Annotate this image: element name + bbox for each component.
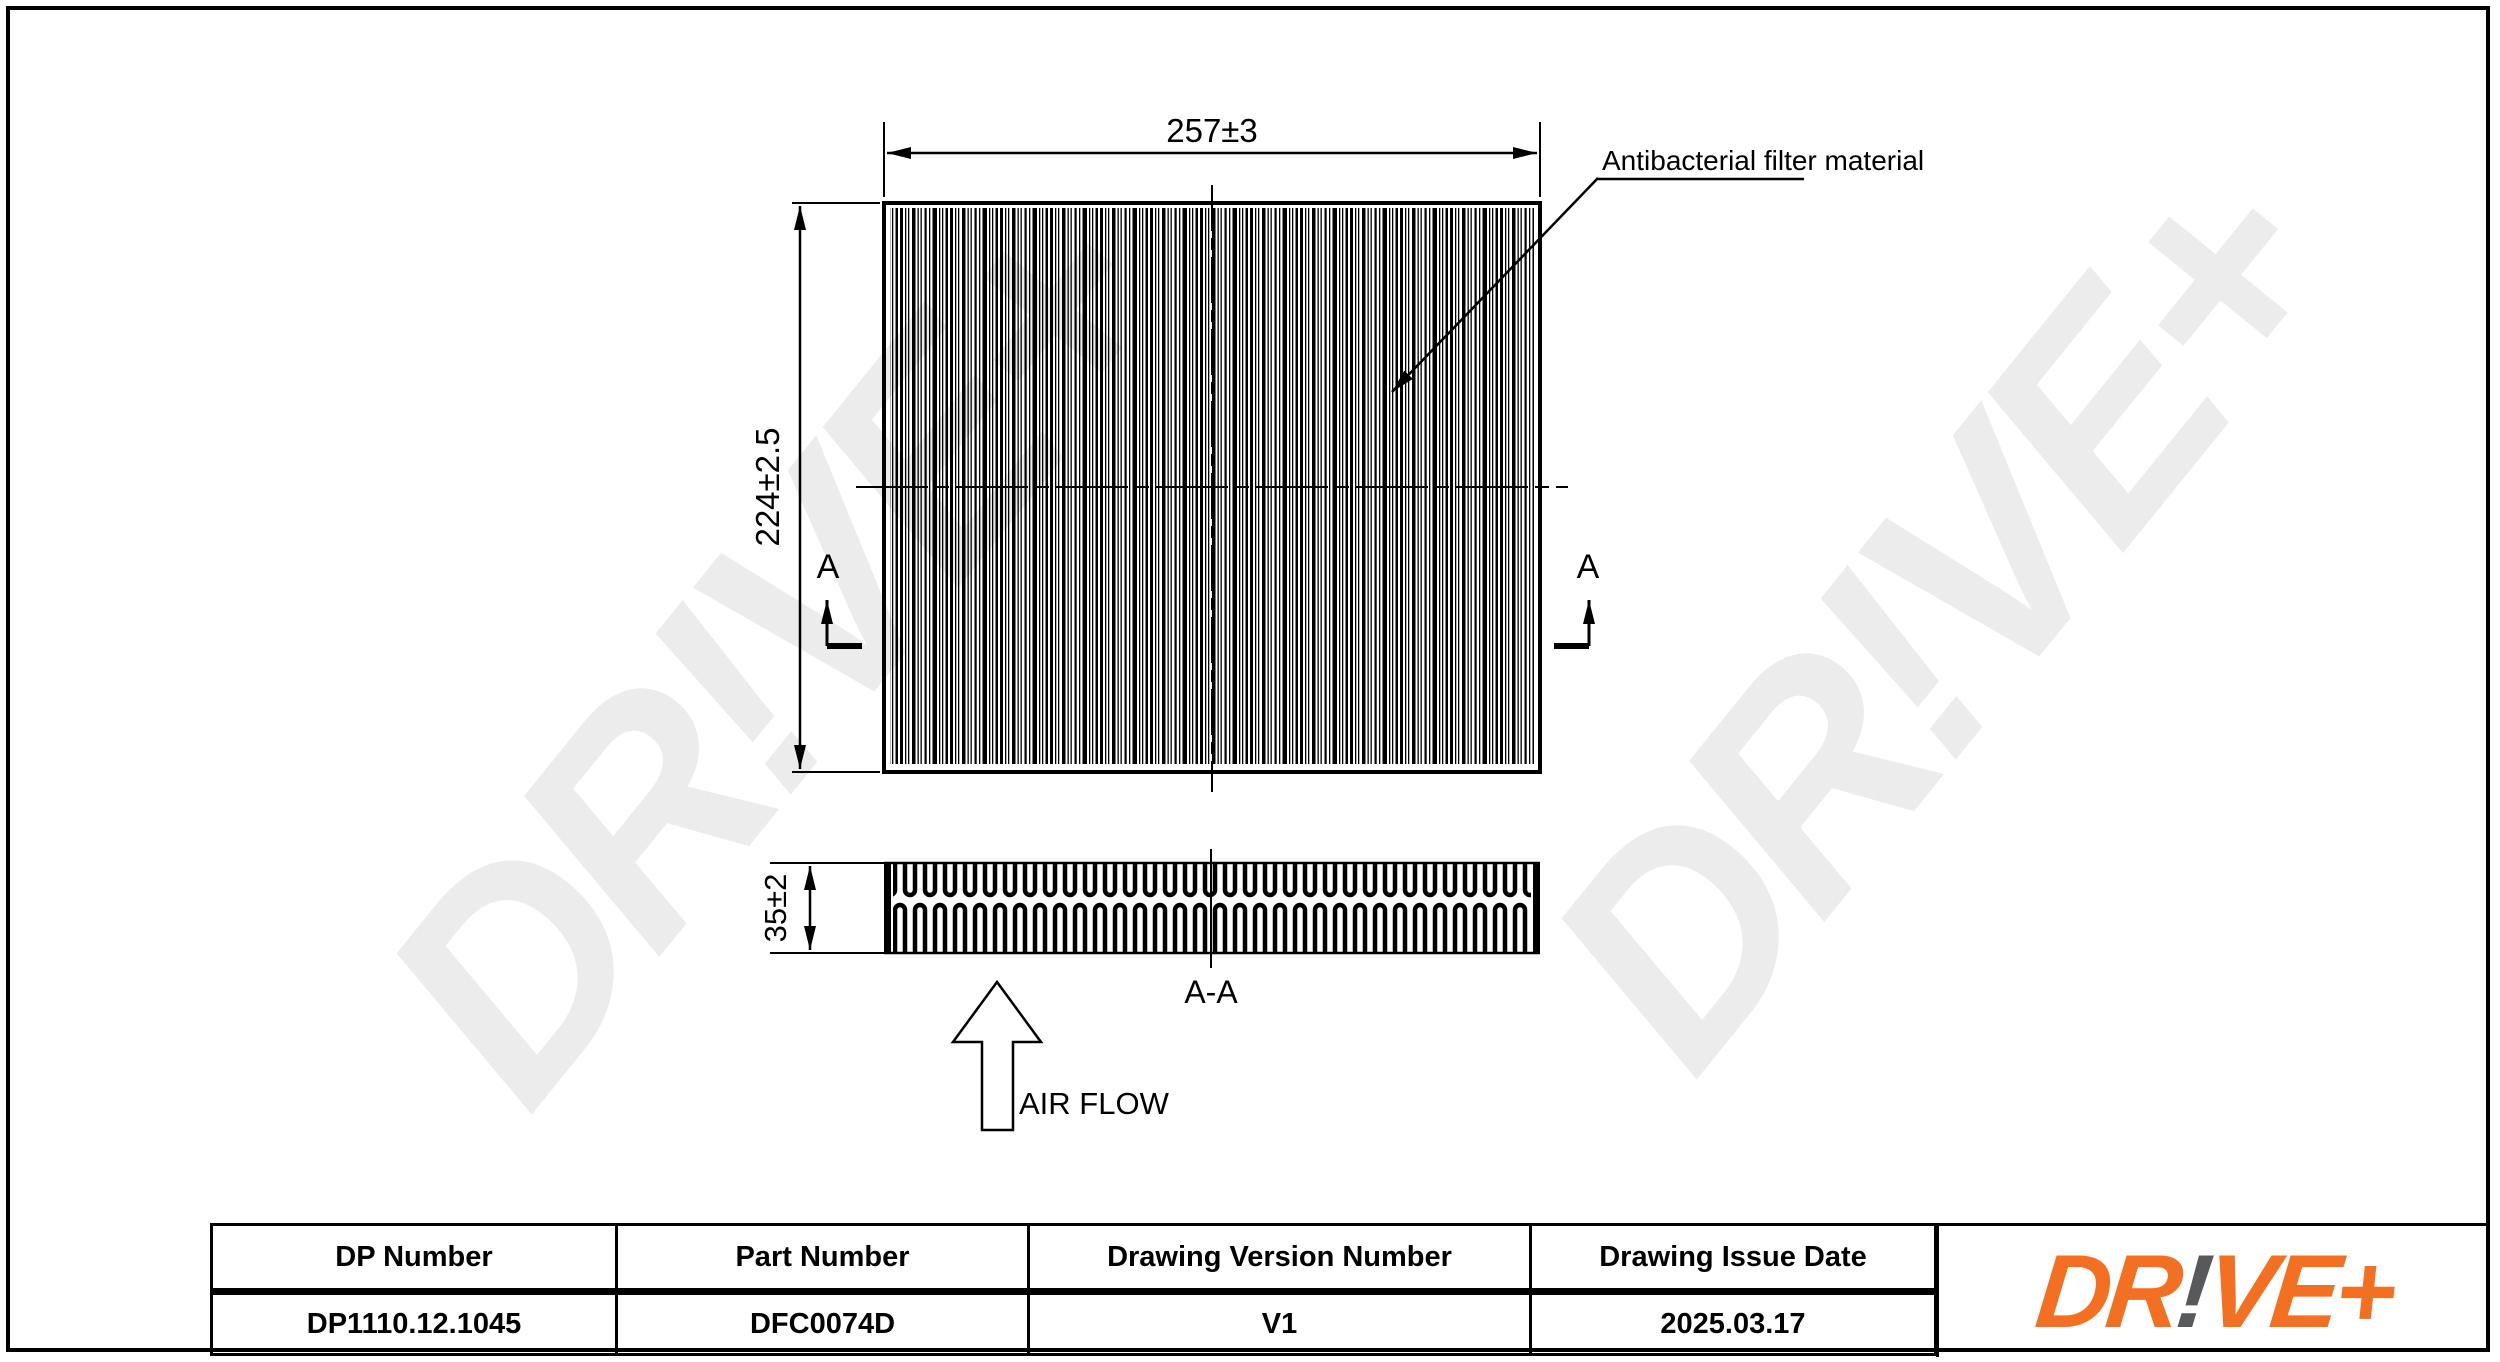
drive-plus-logo: DR!VE+ bbox=[2032, 1240, 2397, 1344]
header-drawing-version: Drawing Version Number bbox=[1029, 1225, 1531, 1292]
plan-view bbox=[856, 185, 1568, 792]
header-dp-number: DP Number bbox=[212, 1225, 617, 1292]
value-dp-number: DP1110.12.1045 bbox=[212, 1292, 617, 1355]
value-drawing-version: V1 bbox=[1029, 1292, 1531, 1355]
filter-technical-drawing: 257±3 224±2.5 A A Antibacterial filter m… bbox=[0, 0, 2500, 1362]
section-letter: A bbox=[1577, 548, 1600, 586]
section-right-end bbox=[1533, 863, 1540, 953]
depth-dimension: 35±2 bbox=[758, 863, 884, 953]
logo-part2: VE+ bbox=[2201, 1234, 2398, 1350]
section-marker-left: A bbox=[817, 548, 862, 646]
value-part-number: DFC0074D bbox=[617, 1292, 1029, 1355]
drawing-sheet: { "drawing": { "dim_width": "257±3", "di… bbox=[0, 0, 2500, 1362]
depth-dimension-text: 35±2 bbox=[758, 874, 793, 943]
airflow-label: AIR FLOW bbox=[1019, 1086, 1170, 1121]
header-issue-date: Drawing Issue Date bbox=[1531, 1225, 1936, 1292]
width-dimension: 257±3 bbox=[884, 112, 1540, 197]
section-letter: A bbox=[817, 548, 840, 586]
table-header-row: DP Number Part Number Drawing Version Nu… bbox=[212, 1225, 1936, 1292]
section-marker-right: A bbox=[1554, 548, 1600, 646]
material-label: Antibacterial filter material bbox=[1602, 145, 1924, 176]
section-view-label: A-A bbox=[1184, 974, 1238, 1010]
section-left-end bbox=[884, 863, 891, 953]
title-block-table: DP Number Part Number Drawing Version Nu… bbox=[210, 1223, 1937, 1356]
height-dimension-text: 224±2.5 bbox=[749, 427, 786, 546]
value-issue-date: 2025.03.17 bbox=[1531, 1292, 1936, 1355]
logo-part1: DR bbox=[2031, 1234, 2183, 1350]
logo-cell: DR!VE+ bbox=[1936, 1223, 2490, 1357]
width-dimension-text: 257±3 bbox=[1166, 112, 1258, 149]
section-view: A-A bbox=[884, 849, 1540, 1010]
airflow-indicator: AIR FLOW bbox=[953, 982, 1170, 1130]
table-value-row: DP1110.12.1045 DFC0074D V1 2025.03.17 bbox=[212, 1292, 1936, 1355]
header-part-number: Part Number bbox=[617, 1225, 1029, 1292]
